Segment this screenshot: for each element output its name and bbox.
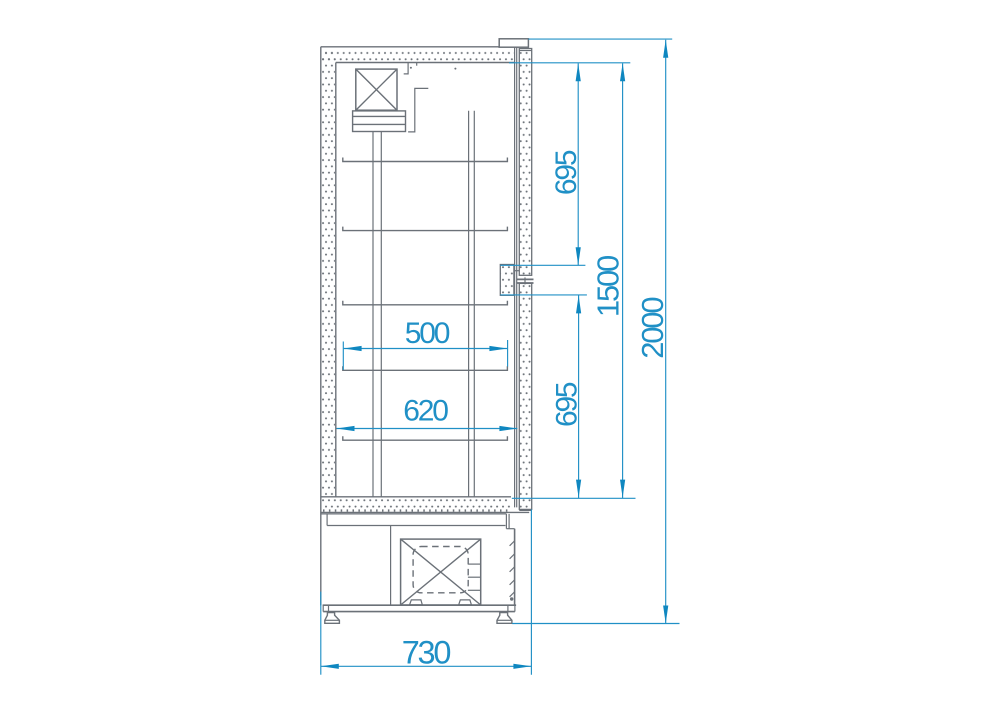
svg-text:500: 500	[405, 317, 450, 350]
svg-text:695: 695	[550, 150, 583, 195]
svg-text:695: 695	[551, 382, 584, 427]
svg-text:620: 620	[403, 395, 448, 428]
svg-text:1500: 1500	[591, 255, 626, 317]
svg-text:2000: 2000	[635, 297, 670, 359]
svg-text:730: 730	[402, 635, 451, 671]
